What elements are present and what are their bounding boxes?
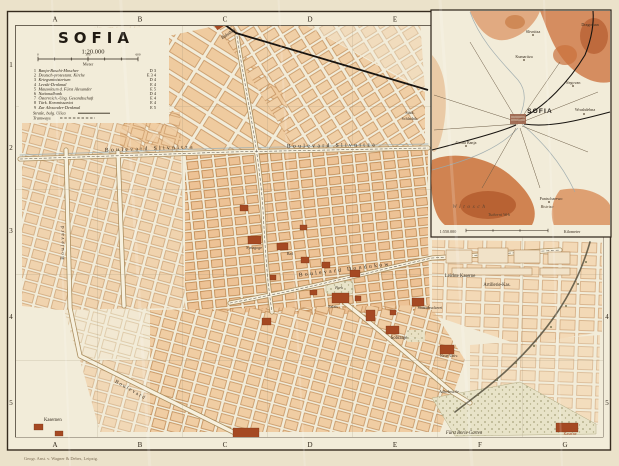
grid-number: 5	[605, 399, 609, 407]
scale-tick-label: 600	[135, 53, 140, 57]
inset-place-label: Wrashdebna	[575, 107, 595, 112]
grid-letter: A	[52, 441, 57, 449]
infantry-barracks-building	[233, 428, 259, 438]
park-label: Park	[334, 285, 343, 290]
scale-unit-label: Meter	[83, 62, 94, 67]
grid-number: 2	[9, 144, 13, 152]
legend-num: 9	[34, 105, 36, 110]
state-printing-label: Staatsdruckerei	[418, 305, 444, 310]
grid-letter: C	[223, 441, 228, 449]
scale-tick-label: 300	[85, 53, 90, 57]
legend-tram-note: Tramways	[33, 115, 51, 120]
inset-town-sofia	[510, 114, 526, 124]
grid-number: 3	[9, 227, 13, 235]
inset-place-label: Negovan	[566, 80, 581, 85]
synagogue-building	[248, 236, 261, 244]
inset-map: SOFIA Dragoman Slivnitza Kumaritza Negov…	[431, 10, 611, 237]
slaughterhouse-label: Städt.	[405, 110, 414, 115]
grid-letter: D	[307, 441, 312, 449]
title-block: SOFIA 1:20.000 0 300 600 Meter 1 Banja-B…	[19, 28, 169, 123]
boris-garden-label: Fürst Boris-Garten	[445, 431, 483, 436]
inset-place-label: Kumaritza	[515, 54, 532, 59]
inset-scale-label: 1:550.000	[440, 229, 457, 234]
barracks-blocks	[446, 248, 570, 275]
slaughterhouse-label: Schlachth.	[402, 116, 419, 121]
historic-city-map-sofia: A B C D E F G A B C D E F G 1 2 3 4 5 1 …	[0, 0, 619, 466]
cavalry-barracks-label: Kaserne	[563, 431, 576, 436]
grid-letter: E	[393, 16, 397, 24]
legend-label: Zar Alexander-Denkmal	[39, 105, 82, 110]
inset-scale-unit: Kilometer	[564, 229, 581, 234]
grid-letter: E	[393, 441, 397, 449]
inset-place-label: Slivnitza	[526, 29, 541, 34]
barracks-label: Kasernen	[44, 418, 62, 423]
parliament-building	[386, 326, 399, 334]
legend-ref: E 5	[150, 105, 156, 110]
grid-letter: B	[138, 441, 143, 449]
map-canvas: A B C D E F G A B C D E F G 1 2 3 4 5 1 …	[0, 0, 619, 466]
grid-number: 4	[9, 313, 13, 321]
grid-letter: D	[307, 16, 312, 24]
inset-place-label: Gorna Banja	[456, 140, 477, 145]
palace-label: Palais	[328, 304, 338, 309]
grid-number: 1	[9, 61, 13, 69]
grid-letter: G	[562, 441, 567, 449]
parliament-label: Sobranje	[391, 336, 408, 341]
inset-mountain-label: Witosch	[452, 204, 487, 210]
cathedral-building	[366, 310, 375, 321]
inset-scale: 1:550.000 Kilometer	[432, 225, 610, 236]
grid-letter: C	[223, 16, 228, 24]
grid-letter: F	[478, 441, 482, 449]
palace-building	[332, 293, 349, 303]
synagogue-label: Synagoge	[246, 245, 262, 250]
university-label: Neue Univ.	[440, 353, 458, 358]
scale-tick-label: 0	[37, 53, 39, 57]
grid-letter: B	[138, 16, 143, 24]
grid-number: 4	[605, 313, 609, 321]
inset-peak-label: Tscherni Wrh	[488, 212, 510, 217]
grid-number: 5	[9, 399, 13, 407]
inset-place-label: Dragoman	[581, 22, 598, 27]
eagle-bridge-label: Adlerbrücke	[438, 389, 459, 394]
bath-building	[277, 243, 288, 250]
barracks-label: Artillerie-Kas.	[483, 283, 510, 288]
